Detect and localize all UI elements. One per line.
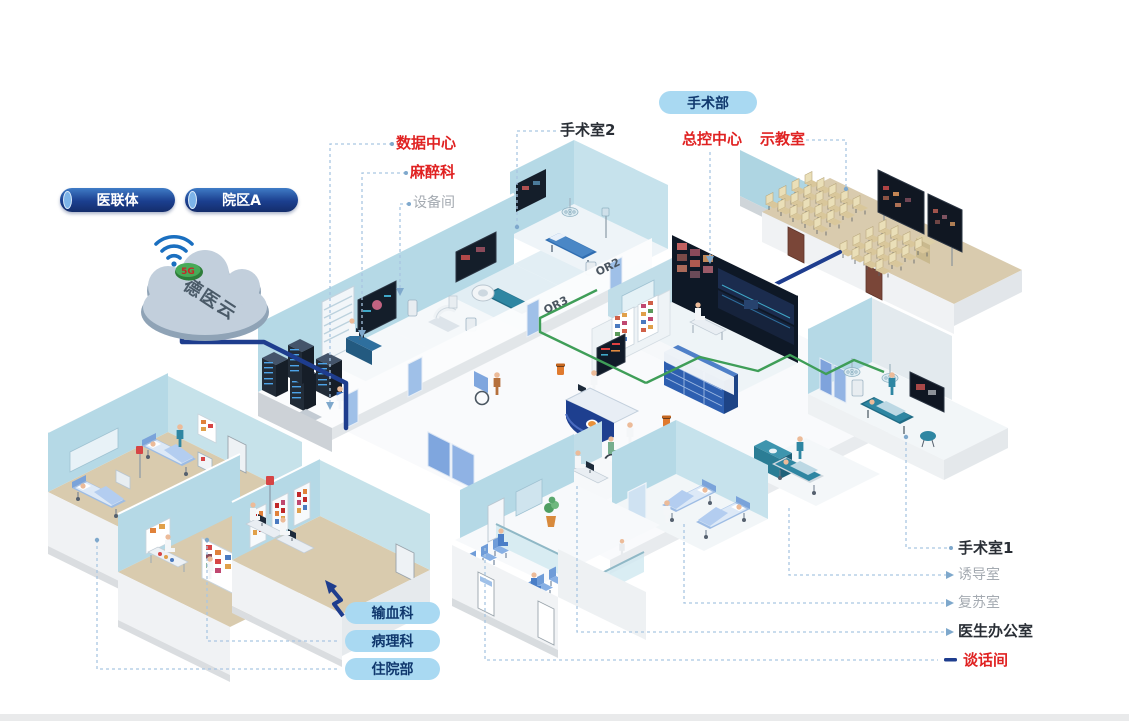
callout-data-center: 数据中心 — [396, 136, 456, 151]
pill-medical-alliance[interactable]: 医联体 — [60, 188, 175, 212]
pill-cap — [63, 191, 72, 209]
pill-medical-alliance-label: 医联体 — [97, 190, 139, 210]
callout-recovery-room: 复苏室 — [958, 596, 1000, 610]
iv-blood-bag-icon — [266, 476, 274, 485]
callout-master-control: 总控中心 — [682, 132, 742, 147]
pill-inpatient-label: 住院部 — [372, 659, 414, 679]
callout-demo-classroom: 示教室 — [760, 132, 805, 147]
cloud: 德医云 5G — [141, 250, 269, 341]
pill-surgery-department-label: 手术部 — [687, 93, 729, 113]
callout-operating-room-1: 手术室1 — [958, 541, 1013, 556]
callout-induction-room: 诱导室 — [958, 568, 1000, 582]
pill-blood-transfusion[interactable]: 输血科 — [345, 602, 440, 624]
pill-campus-a[interactable]: 院区A — [185, 188, 298, 212]
callout-anesthesiology: 麻醉科 — [410, 165, 455, 180]
iv-bag-icon — [136, 446, 143, 454]
pill-cap — [188, 191, 197, 209]
hospital-isometric-diagram: OR3 OR2 — [0, 0, 1129, 721]
bottom-edge-bar — [0, 714, 1129, 721]
callout-doctor-office: 医生办公室 — [958, 624, 1033, 639]
pill-surgery-department[interactable]: 手术部 — [659, 91, 757, 114]
mobile-device-cart — [408, 300, 417, 316]
talk-front-door-2 — [538, 601, 554, 645]
pill-inpatient[interactable]: 住院部 — [345, 658, 440, 680]
badge-5g-text: 5G — [181, 267, 195, 277]
talk-room-dash — [944, 658, 957, 662]
callout-equipment-room: 设备间 — [413, 196, 455, 210]
pill-blood-transfusion-label: 输血科 — [372, 603, 414, 623]
callout-operating-room-2: 手术室2 — [560, 123, 615, 138]
pill-pathology[interactable]: 病理科 — [345, 630, 440, 652]
door-or3 — [527, 299, 539, 337]
door-anesthesiology — [408, 357, 422, 397]
trash-bin-icon — [556, 364, 565, 376]
callout-talk-room: 谈话间 — [963, 653, 1008, 668]
pill-campus-a-label: 院区A — [222, 190, 261, 210]
pill-pathology-label: 病理科 — [372, 631, 414, 651]
isometric-scene: OR3 OR2 — [0, 0, 1129, 721]
anesthesia-cart — [852, 380, 863, 396]
